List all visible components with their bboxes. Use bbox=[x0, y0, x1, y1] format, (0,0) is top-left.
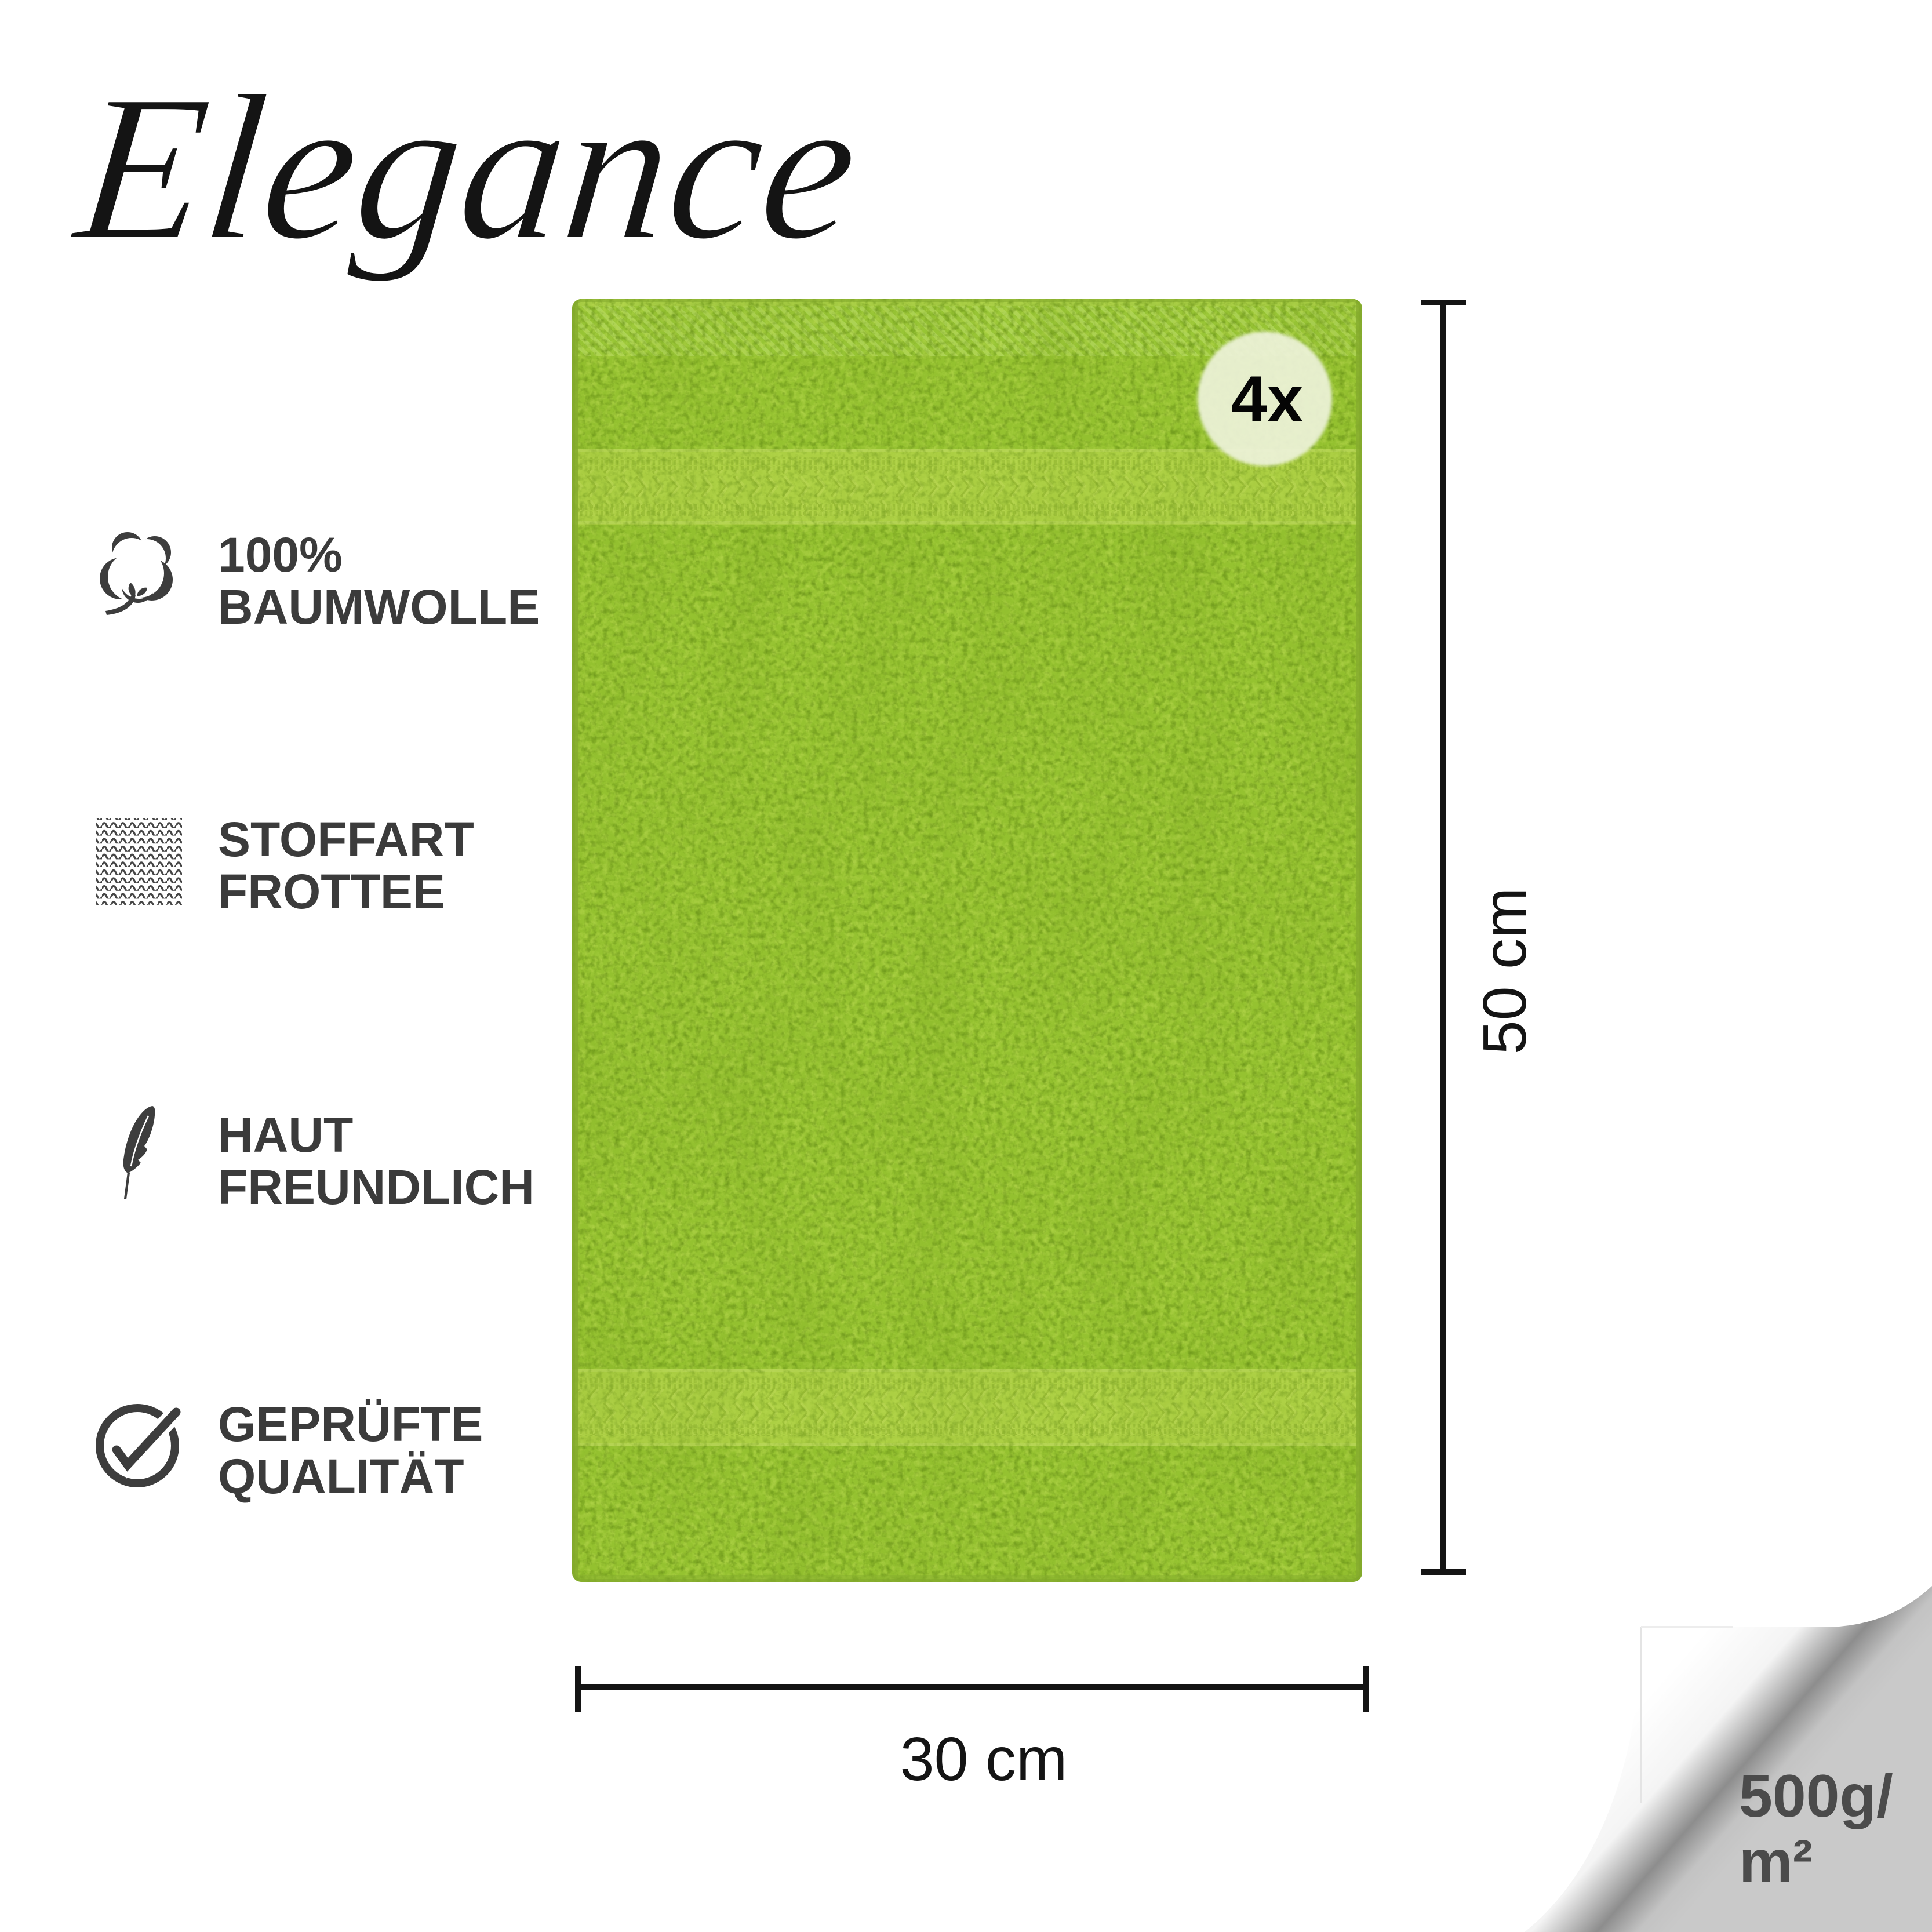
svg-text:STOFFART: STOFFART bbox=[218, 812, 474, 867]
svg-text:QUALITÄT: QUALITÄT bbox=[218, 1449, 464, 1504]
svg-text:FROTTEE: FROTTEE bbox=[218, 864, 445, 919]
svg-text:50 cm: 50 cm bbox=[1471, 887, 1539, 1055]
svg-text:4x: 4x bbox=[1231, 363, 1304, 435]
svg-text:HAUT: HAUT bbox=[218, 1108, 353, 1162]
svg-text:m²: m² bbox=[1739, 1828, 1813, 1895]
svg-text:500g/: 500g/ bbox=[1739, 1763, 1893, 1830]
svg-text:GEPRÜFTE: GEPRÜFTE bbox=[218, 1397, 483, 1451]
svg-text:30 cm: 30 cm bbox=[900, 1725, 1068, 1793]
svg-text:100%: 100% bbox=[218, 527, 343, 582]
svg-text:BAUMWOLLE: BAUMWOLLE bbox=[218, 580, 540, 634]
svg-text:Elegance: Elegance bbox=[64, 52, 868, 283]
svg-text:FREUNDLICH: FREUNDLICH bbox=[218, 1160, 534, 1214]
